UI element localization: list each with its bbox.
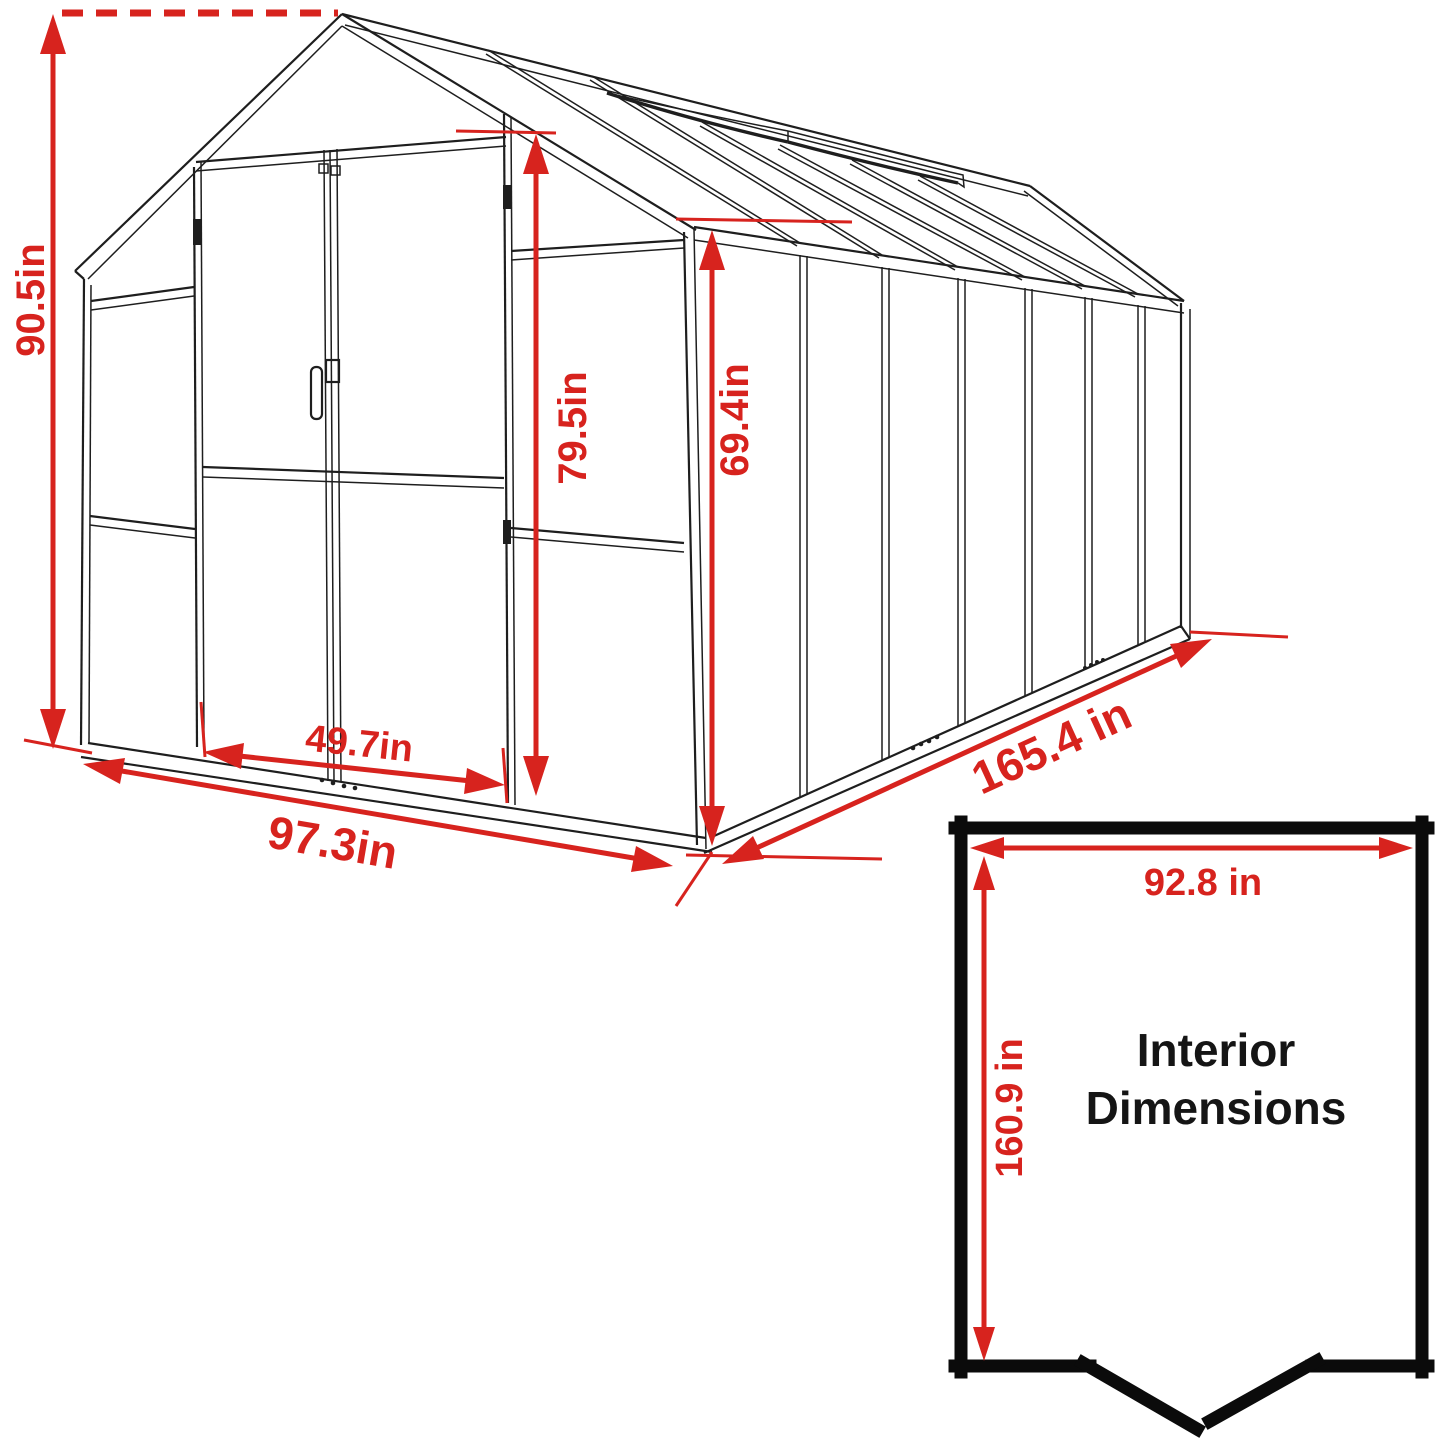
dimension-front-width: 97.3in bbox=[83, 758, 712, 906]
double-doors bbox=[193, 114, 515, 805]
dimension-label-overall-height: 90.5in bbox=[9, 243, 53, 356]
diagram-page: 90.5in 79.5in 69.4in 49.7in bbox=[0, 0, 1445, 1445]
dimension-label-wall-height: 69.4in bbox=[713, 363, 757, 476]
interior-title-line2: Dimensions bbox=[1086, 1082, 1347, 1134]
greenhouse-dimension-diagram: 90.5in 79.5in 69.4in 49.7in bbox=[0, 0, 1445, 1445]
interior-width-label: 92.8 in bbox=[1144, 862, 1262, 904]
interior-title-line1: Interior bbox=[1137, 1024, 1296, 1076]
dimension-door-height: 79.5in bbox=[456, 131, 595, 796]
roof bbox=[75, 14, 1184, 313]
interior-depth-label: 160.9 in bbox=[989, 1038, 1031, 1177]
interior-dimensions-box: 92.8 in 160.9 in Interior Dimensions bbox=[955, 822, 1428, 1429]
roof-vent-window bbox=[607, 93, 964, 187]
dimension-overall-height: 90.5in bbox=[9, 13, 338, 753]
interior-depth-dimension: 160.9 in bbox=[973, 856, 1031, 1361]
dimension-label-door-height: 79.5in bbox=[551, 371, 595, 484]
dimension-callouts: 90.5in 79.5in 69.4in 49.7in bbox=[9, 13, 1288, 906]
dimension-wall-height: 69.4in bbox=[676, 219, 852, 846]
interior-width-dimension: 92.8 in bbox=[970, 837, 1413, 904]
dimension-label-side-length: 165.4 in bbox=[964, 687, 1139, 805]
open-door-leaves bbox=[1083, 1361, 1317, 1429]
